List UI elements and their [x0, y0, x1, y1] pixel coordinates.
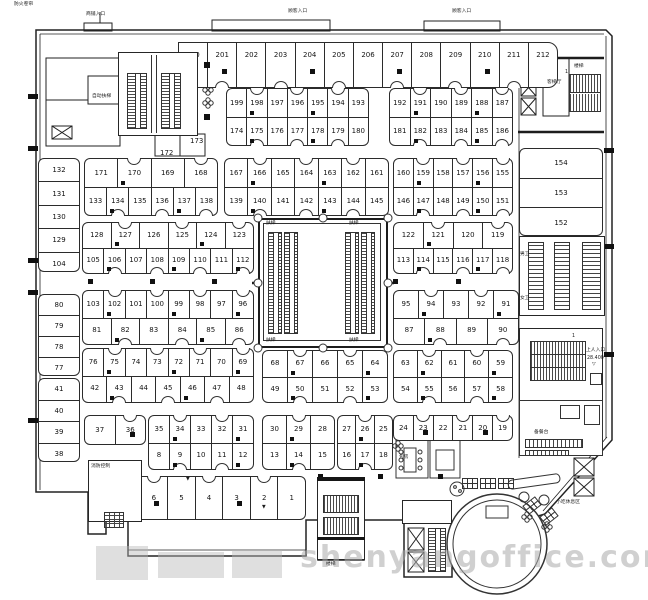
shop-block-row3a: 171170169168133134135136137138 [84, 158, 218, 216]
shop-cell: 126 [140, 223, 169, 248]
shop-block-lc2: 80797877 [38, 294, 80, 376]
unit-number: 142 [300, 198, 313, 205]
shop-row: 200201202203204205206207208209210211212 [179, 43, 557, 87]
shop-block-row5b: 959493929187888990 [393, 290, 519, 345]
shop-cell: 196 [288, 89, 308, 117]
shop-cell: 142 [295, 187, 318, 215]
escalator-icon [284, 232, 298, 334]
unit-number: 206 [361, 52, 374, 59]
unit-number: 137 [178, 198, 191, 205]
door-arc-icon [215, 81, 229, 88]
shop-cell: 147 [414, 187, 434, 215]
shop-cell: 6 [141, 477, 169, 519]
shop-block-row4b: 122121120119113114115116117118 [393, 222, 513, 274]
unit-number: 103 [87, 301, 100, 308]
column-marker [485, 69, 490, 74]
unit-number: 88 [436, 327, 445, 334]
shop-row: 174175176177178179180 [227, 117, 368, 145]
room-label: 包房 [399, 455, 409, 460]
shop-cell: 164 [295, 159, 318, 187]
central-atrium [258, 218, 388, 348]
unit-number: 149 [456, 198, 469, 205]
counter [525, 450, 569, 456]
unit-number: 30 [270, 426, 279, 433]
unit-number: 16 [342, 452, 351, 459]
unit-number: 62 [425, 360, 434, 367]
shop-block-rrooms: 154153152 [519, 148, 603, 236]
unit-number: 99 [174, 301, 183, 308]
shop-cell: 35 [149, 416, 170, 443]
unit-number: 67 [296, 360, 305, 367]
unit-number: 194 [331, 100, 344, 107]
shop-row: 139140141142143144145 [225, 187, 388, 215]
stair-runs [530, 341, 586, 381]
shop-cell: 82 [112, 318, 141, 345]
shop-cell: 209 [441, 43, 470, 87]
column-marker [421, 371, 425, 375]
unit-number: 42 [90, 385, 99, 392]
shop-cell: 11 [212, 443, 233, 470]
column-marker [236, 312, 240, 316]
block-divider [83, 248, 253, 249]
shop-cell: 185 [472, 117, 493, 145]
column-marker [115, 242, 119, 246]
elevator-vestibule [402, 500, 452, 524]
shop-row: 161718 [338, 443, 392, 470]
door-arc-icon [413, 88, 427, 95]
door-arc-icon [343, 350, 357, 357]
shop-cell: 60 [465, 351, 489, 377]
unit-number: 13 [270, 452, 279, 459]
atrium-node [254, 279, 263, 288]
shop-cell: 175 [247, 117, 267, 145]
shop-row: 3534333231 [149, 416, 253, 443]
atrium-node [254, 344, 263, 353]
door-arc-icon [299, 209, 313, 216]
shop-cell: 160 [394, 159, 414, 187]
unit-number: 108 [151, 257, 164, 264]
door-arc-icon [456, 158, 470, 165]
unit-number: 114 [417, 257, 430, 264]
shop-cell: 59 [489, 351, 512, 377]
door-arc-icon [108, 348, 122, 355]
shop-cell: 28 [311, 416, 334, 443]
block-divider [83, 318, 253, 319]
unit-number: 155 [496, 170, 509, 177]
unit-number: 170 [128, 170, 141, 177]
fire-control-label: 消防控制 [91, 464, 112, 469]
door-arc-icon [257, 476, 271, 483]
door-arc-icon [193, 267, 207, 274]
shop-cell: 40 [39, 401, 79, 423]
unit-number: 74 [131, 359, 140, 366]
unit-number: 70 [217, 359, 226, 366]
escalator-icon [127, 73, 147, 129]
column-marker [222, 69, 227, 74]
unit-number: 111 [215, 257, 228, 264]
shop-cell: 155 [493, 159, 512, 187]
unit-number: 203 [274, 52, 287, 59]
shop-cell: 91 [494, 291, 518, 318]
unit-number: 152 [554, 219, 567, 227]
shop-cell: 111 [211, 248, 232, 273]
shop-cell: 121 [424, 223, 454, 248]
shop-cell: 26 [356, 416, 374, 443]
shop-cell: 10 [191, 443, 212, 470]
shop-cell: 83 [140, 318, 169, 345]
shop-cell: 85 [197, 318, 226, 345]
shop-cell: 161 [366, 159, 388, 187]
shop-cell: 43 [107, 376, 131, 403]
unit-number: 59 [496, 360, 505, 367]
column-marker [291, 371, 295, 375]
shop-cell: 145 [366, 187, 388, 215]
shop-cell: 19 [493, 416, 512, 440]
shop-cell: 144 [342, 187, 365, 215]
shop-cell: 171 [85, 159, 118, 187]
unit-number: 163 [323, 170, 336, 177]
unit-number: 4 [207, 495, 211, 502]
unit-number: 210 [478, 52, 491, 59]
unit-number: 132 [52, 166, 65, 174]
unit-number: 91 [502, 301, 511, 308]
unit-number: 144 [347, 198, 360, 205]
shop-block-row4a: 1281271261251241231051061071081091101111… [82, 222, 254, 274]
shop-cell: 13 [263, 443, 287, 470]
door-arc-icon [173, 415, 187, 422]
shop-cell: 191 [411, 89, 432, 117]
unit-number: 51 [321, 386, 330, 393]
stairs-label: 楼梯 [574, 64, 584, 69]
unit-number: 150 [476, 198, 489, 205]
door-arc-icon [346, 209, 360, 216]
unit-number: 39 [55, 428, 64, 436]
column-marker [290, 437, 294, 441]
shop-block-lc3: 41403938 [38, 378, 80, 462]
unit-number: 154 [554, 159, 567, 167]
door-arc-icon [491, 222, 505, 229]
column-marker [121, 181, 125, 185]
shop-cell: 201 [208, 43, 237, 87]
column-marker [417, 209, 421, 213]
shop-row: 131415 [263, 443, 334, 470]
shop-cell: 129 [39, 229, 79, 252]
unit-number: 64 [371, 360, 380, 367]
unit-number: 11 [218, 452, 227, 459]
atrium-node [319, 214, 328, 223]
unit-number: 117 [476, 257, 489, 264]
door-arrow-icon: ▼ [186, 477, 190, 482]
shop-block-row7b: 302928131415 [262, 415, 335, 470]
unit-number: 172 [160, 150, 173, 157]
unit-number: 133 [89, 198, 102, 205]
shop-cell: 162 [342, 159, 365, 187]
shop-cell: 87 [394, 318, 425, 345]
column-marker [421, 396, 425, 400]
unit-number: 129 [52, 236, 65, 244]
shop-cell: 120 [454, 223, 484, 248]
shop-cell: 165 [272, 159, 295, 187]
shop-row: 167166165164163162161 [225, 159, 388, 187]
unit-number: 22 [439, 425, 448, 432]
shop-cell: 122 [394, 223, 424, 248]
shop-cell: 31 [233, 416, 253, 443]
shop-cell: 17 [356, 443, 374, 470]
unit-number: 192 [393, 100, 406, 107]
unit-number: 80 [55, 301, 64, 309]
shop-cell: 178 [308, 117, 328, 145]
unit-number: 60 [472, 360, 481, 367]
unit-number: 202 [245, 52, 258, 59]
shop-cell: 197 [268, 89, 288, 117]
shop-cell: 112 [233, 248, 253, 273]
shop-cell: 44 [132, 376, 156, 403]
door-arc-icon [108, 290, 122, 297]
door-arc-icon [496, 415, 510, 422]
shop-block-row2a: 1991981971961951941931741751761771781791… [226, 88, 369, 146]
unit-number: 77 [55, 364, 64, 372]
column-marker [366, 396, 370, 400]
shop-cell: 190 [431, 89, 452, 117]
shop-cell: 130 [39, 206, 79, 229]
unit-number: 81 [92, 327, 101, 334]
unit-number: 97 [217, 301, 226, 308]
column-marker [492, 396, 496, 400]
column-marker [204, 62, 210, 68]
table-icon [462, 478, 478, 489]
unit-number: 48 [237, 385, 246, 392]
shop-cell: 3 [223, 477, 251, 519]
shop-row: 272625 [338, 416, 392, 443]
lift-hall-label: 客梯厅 [547, 80, 568, 85]
shop-row: 7675747372717069 [83, 349, 253, 376]
door-arc-icon [150, 348, 164, 355]
door-arc-icon [147, 476, 161, 483]
unit-number: 124 [204, 232, 217, 239]
unit-number: 85 [206, 327, 215, 334]
block-divider [83, 376, 253, 377]
unit-number: 45 [164, 385, 173, 392]
shop-cell: 18 [375, 443, 392, 470]
shop-block-row3c: 1671661651641631621611391401411421431441… [224, 158, 389, 216]
shop-cell: 20 [473, 416, 493, 440]
unit-number: 50 [296, 386, 305, 393]
door-arc-icon [474, 290, 488, 297]
shop-cell: 98 [190, 291, 211, 318]
unit-number: 181 [393, 128, 406, 135]
unit-number: 167 [230, 170, 243, 177]
unit-number: 179 [331, 128, 344, 135]
stair-run [323, 517, 359, 535]
shop-cell: 148 [434, 187, 454, 215]
unit-number: 127 [119, 232, 132, 239]
unit-number: 71 [196, 359, 205, 366]
stair-number: 1 [572, 334, 575, 339]
column-marker [250, 139, 254, 143]
unit-number: 158 [436, 170, 449, 177]
fire-shutter-label: 防火卷帘 [14, 2, 33, 7]
shop-block-row6b: 68676665644950515253 [262, 350, 388, 403]
shop-cell: 88 [425, 318, 456, 345]
shop-cell: 100 [147, 291, 168, 318]
shop-cell: 125 [169, 223, 198, 248]
unit-number: 95 [402, 301, 411, 308]
shop-cell: 167 [225, 159, 248, 187]
unit-number: 57 [472, 386, 481, 393]
stair-landing-line [530, 354, 586, 355]
unit-number: 175 [250, 128, 263, 135]
column-marker [476, 209, 480, 213]
shop-block-row7s: 3736 [84, 415, 146, 445]
door-arc-icon [155, 209, 169, 216]
unit-number: 182 [414, 128, 427, 135]
shop-cell: 58 [489, 377, 512, 403]
unit-number: 189 [455, 100, 468, 107]
shop-cell: 174 [227, 117, 247, 145]
unit-number: 35 [155, 426, 164, 433]
column-marker [475, 111, 479, 115]
column-marker [110, 396, 114, 400]
unit-number: 14 [294, 452, 303, 459]
shop-row: 4950515253 [263, 377, 387, 403]
shop-cell: 124 [197, 223, 226, 248]
door-arc-icon [199, 209, 213, 216]
unit-number: 27 [342, 426, 351, 433]
shop-row: 242322212019 [394, 416, 512, 440]
escalator-bank-top-left [118, 52, 198, 136]
shop-cell: 75 [104, 349, 125, 376]
unit-number: 29 [294, 426, 303, 433]
door-arc-icon [346, 158, 360, 165]
unit-number: 92 [477, 301, 486, 308]
unit-number: 75 [110, 359, 119, 366]
shop-cell: 27 [338, 416, 356, 443]
unit-number: 110 [193, 257, 206, 264]
shop-block-row6a: 767574737271706942434445464748 [82, 348, 254, 403]
unit-number: 162 [347, 170, 360, 177]
shop-cell: 199 [227, 89, 247, 117]
shop-cell: 45 [156, 376, 180, 403]
unit-number: 123 [233, 232, 246, 239]
shop-cell: 105 [83, 248, 104, 273]
atrium-node [384, 279, 393, 288]
shop-cell: 4 [196, 477, 224, 519]
shop-cell: 57 [465, 377, 489, 403]
shop-cell: 179 [328, 117, 348, 145]
shop-cell: 119 [483, 223, 512, 248]
door-arc-icon [175, 222, 189, 229]
shop-cell: 55 [418, 377, 442, 403]
unit-number: 2 [262, 495, 266, 502]
unit-number: 212 [536, 52, 549, 59]
door-arc-icon [496, 158, 510, 165]
unit-number: 93 [452, 301, 461, 308]
shop-cell: 63 [394, 351, 418, 377]
shop-row: 6867666564 [263, 351, 387, 377]
block-divider [394, 187, 512, 188]
column-marker [483, 430, 488, 435]
shop-cell: 50 [288, 377, 313, 403]
unit-number: 26 [361, 426, 370, 433]
shop-row: 5455565758 [394, 377, 512, 403]
unit-number: 183 [434, 128, 447, 135]
shop-block-row3d: 160159158157156155146147148149150151 [393, 158, 513, 216]
column-marker [492, 371, 496, 375]
shop-cell: 15 [311, 443, 334, 470]
unit-number: 118 [496, 257, 509, 264]
shop-cell: 211 [500, 43, 529, 87]
shop-block-row2b: 192191190189188187181182183184185186 [389, 88, 513, 146]
unit-number: 100 [151, 301, 164, 308]
shop-cell: 22 [434, 416, 454, 440]
unit-number: 90 [498, 327, 507, 334]
shop-cell: 156 [473, 159, 493, 187]
escalator-icon [345, 232, 359, 334]
block-divider [390, 117, 512, 118]
shop-cell: 205 [325, 43, 354, 87]
shop-row: 105106107108109110111112 [83, 248, 253, 273]
unit-number: 55 [425, 386, 434, 393]
shop-cell: 56 [442, 377, 466, 403]
unit-number: 106 [108, 257, 121, 264]
unit-number: 208 [420, 52, 433, 59]
shop-row: 818283848586 [83, 318, 253, 345]
unit-number: 65 [346, 360, 355, 367]
shop-cell: 39 [39, 422, 79, 444]
unit-number: 52 [346, 386, 355, 393]
escalator-label: 自动扶梯 [92, 94, 113, 99]
shop-cell: 186 [493, 117, 513, 145]
shop-cell: 81 [83, 318, 112, 345]
unit-number: 33 [197, 426, 206, 433]
unit-number: 9 [178, 452, 182, 459]
door-arc-icon [496, 267, 510, 274]
shop-cell: 34 [170, 416, 191, 443]
column-marker [423, 430, 428, 435]
column-marker [427, 242, 431, 246]
unit-number: 178 [311, 128, 324, 135]
shop-row: 192191190189188187 [390, 89, 512, 117]
unit-number: 104 [52, 260, 65, 268]
shop-cell: 8 [149, 443, 170, 470]
shop-row: 42434445464748 [83, 376, 253, 403]
shop-block-row5a: 10310210110099989796818283848586 [82, 290, 254, 345]
unit-number: 204 [303, 52, 316, 59]
column-marker [172, 312, 176, 316]
unit-number: 47 [212, 385, 221, 392]
column-marker [107, 312, 111, 316]
table-icon [480, 478, 496, 489]
shop-cell: 153 [520, 179, 602, 209]
shop-cell: 12 [233, 443, 253, 470]
shop-cell: 41 [39, 379, 79, 401]
shop-cell: 189 [452, 89, 473, 117]
shop-cell: 72 [169, 349, 190, 376]
unit-number: 5 [179, 495, 183, 502]
block-divider [227, 117, 368, 118]
door-arc-icon [236, 348, 250, 355]
shop-cell: 131 [39, 182, 79, 205]
shop-cell: 140 [248, 187, 271, 215]
unit-number: 168 [194, 170, 207, 177]
shop-block-row7c: 272625161718 [337, 415, 393, 470]
door-arc-icon [433, 338, 447, 345]
shop-cell: 154 [520, 149, 602, 179]
column-marker [322, 181, 326, 185]
column-marker [172, 267, 176, 271]
unit-number: 207 [390, 52, 403, 59]
escalator-label: 扶梯 [266, 338, 276, 343]
